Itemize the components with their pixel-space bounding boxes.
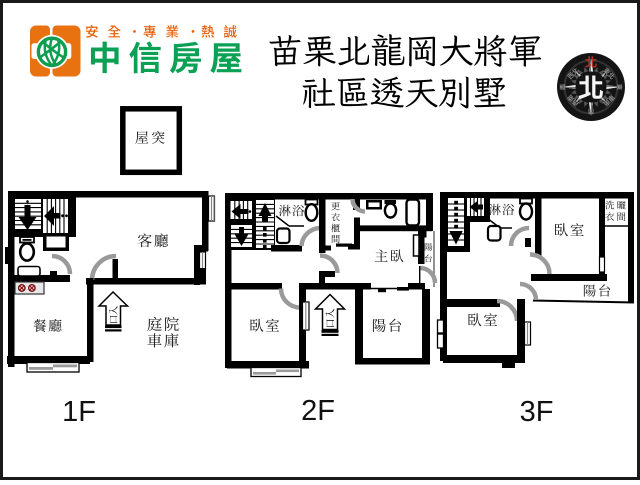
svg-text:3F: 3F <box>520 396 554 428</box>
svg-text:1F: 1F <box>62 396 96 428</box>
svg-text:2F: 2F <box>301 395 335 427</box>
